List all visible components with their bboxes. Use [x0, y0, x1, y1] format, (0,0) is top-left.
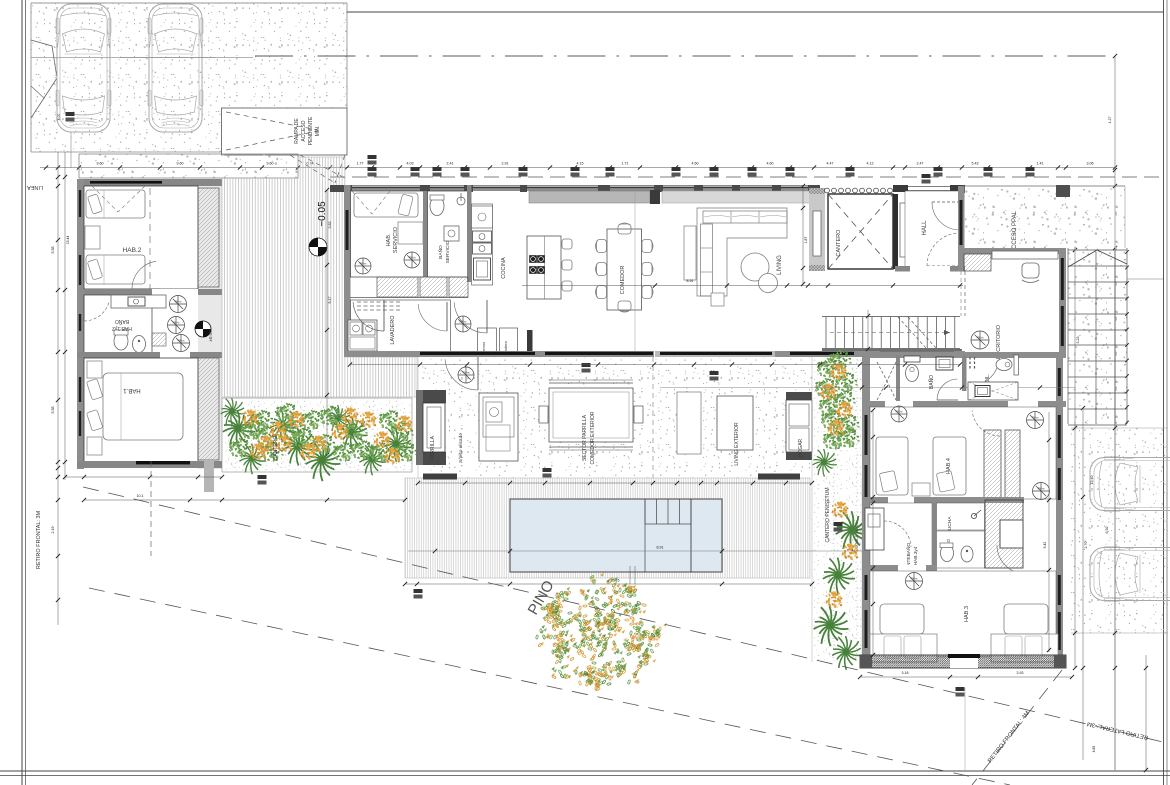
svg-text:RAMPA DE: RAMPA DE: [294, 118, 300, 144]
svg-text:2.47: 2.47: [917, 162, 924, 166]
svg-text:DOBLE MURO: DOBLE MURO: [854, 522, 859, 549]
svg-text:RETIRO FRONTAL: 4M: RETIRO FRONTAL: 4M: [987, 710, 1031, 764]
svg-text:HALL: HALL: [922, 220, 928, 236]
svg-text:2.41: 2.41: [447, 162, 454, 166]
svg-text:PHm: PHm: [178, 339, 185, 343]
svg-text:ACCESO PPAL: ACCESO PPAL: [1012, 210, 1018, 253]
svg-text:PENDIENTE: PENDIENTE: [308, 116, 314, 145]
svg-text:3.06: 3.06: [1087, 162, 1094, 166]
svg-text:COMEDOR: COMEDOR: [620, 266, 626, 295]
svg-text:MIN.: MIN.: [315, 126, 321, 137]
svg-text:RETIRO FRONTAL: 3M: RETIRO FRONTAL: 3M: [36, 510, 42, 569]
svg-text:6.92: 6.92: [1105, 527, 1109, 534]
svg-text:S/piso alisado: S/piso alisado: [458, 433, 464, 463]
svg-text:SERVICIO: SERVICIO: [445, 240, 451, 263]
svg-text:5.58: 5.58: [51, 407, 55, 414]
svg-text:ACCESO: ACCESO: [301, 120, 307, 141]
svg-text:COCINA: COCINA: [501, 257, 507, 279]
svg-text:CANTERO PENISETUM: CANTERO PENISETUM: [825, 487, 831, 542]
svg-text:2.70: 2.70: [1084, 542, 1088, 549]
svg-text:HAB.1: HAB.1: [123, 387, 141, 393]
svg-text:3.83: 3.83: [328, 222, 332, 229]
svg-text:1.71: 1.71: [622, 162, 629, 166]
svg-text:PHm: PHm: [175, 300, 182, 304]
svg-text:±0.00: ±0.00: [208, 330, 213, 342]
svg-text:CANTERO: CANTERO: [836, 229, 842, 257]
svg-text:15.44: 15.44: [66, 236, 70, 245]
svg-text:LIVING EXTERIOR: LIVING EXTERIOR: [734, 422, 740, 466]
svg-text:4.27: 4.27: [1108, 117, 1112, 124]
svg-text:5.58: 5.58: [51, 247, 55, 254]
svg-text:PHm: PHm: [173, 321, 180, 325]
svg-text:HAB.2: HAB.2: [123, 247, 142, 254]
svg-text:PHm: PHm: [911, 577, 918, 581]
svg-text:HAB.: HAB.: [386, 233, 392, 246]
svg-text:−0.05: −0.05: [317, 201, 328, 227]
svg-text:SERVICIO: SERVICIO: [393, 226, 399, 253]
svg-text:PARRILLA: PARRILLA: [430, 435, 436, 459]
svg-text:1.41: 1.41: [1037, 162, 1044, 166]
svg-text:3.18: 3.18: [902, 671, 909, 675]
svg-text:1.77: 1.77: [357, 162, 364, 166]
svg-text:RETIRO LATERAL:-3M: RETIRO LATERAL:-3M: [1087, 720, 1149, 740]
svg-text:10.1: 10.1: [137, 494, 144, 498]
svg-text:5.42: 5.42: [1043, 542, 1047, 549]
svg-text:COMEDOR EXTERIOR: COMEDOR EXTERIOR: [590, 411, 596, 464]
svg-text:2.19: 2.19: [51, 527, 55, 534]
svg-text:HOGAR: HOGAR: [798, 438, 804, 457]
svg-text:13.40: 13.40: [1090, 476, 1094, 485]
svg-text:LINEA: LINEA: [27, 184, 43, 190]
svg-text:2.91: 2.91: [502, 162, 509, 166]
svg-text:4.85: 4.85: [1092, 746, 1096, 753]
svg-text:8.91: 8.91: [657, 546, 664, 550]
svg-text:HAB.1y2: HAB.1y2: [112, 325, 132, 331]
svg-text:SECTOR PARRILLA: SECTOR PARRILLA: [582, 414, 588, 461]
svg-text:PHm: PHm: [977, 336, 984, 340]
svg-text:PHm: PHm: [1032, 416, 1039, 420]
svg-text:PHm: PHm: [463, 371, 470, 375]
svg-text:4.03: 4.03: [407, 162, 414, 166]
svg-text:BAÑO: BAÑO: [928, 375, 935, 389]
svg-text:4.60: 4.60: [767, 162, 774, 166]
svg-text:PHm: PHm: [360, 262, 367, 266]
svg-text:BAÑO: BAÑO: [115, 318, 129, 325]
svg-text:PHm: PHm: [896, 410, 903, 414]
svg-text:HAB.4: HAB.4: [946, 458, 952, 474]
svg-text:LAVADERO: LAVADERO: [390, 315, 396, 345]
svg-text:HAB.3y4: HAB.3y4: [913, 546, 919, 565]
svg-text:4.47: 4.47: [827, 162, 834, 166]
svg-text:5.43: 5.43: [972, 162, 979, 166]
svg-text:4.00: 4.00: [57, 114, 61, 121]
svg-text:1.87: 1.87: [804, 237, 808, 244]
svg-text:CANTERO: CANTERO: [273, 436, 279, 461]
svg-text:BAÑO: BAÑO: [437, 245, 444, 259]
svg-text:5.17: 5.17: [328, 297, 332, 304]
svg-text:8.91: 8.91: [687, 279, 694, 283]
svg-text:3.93: 3.93: [1017, 671, 1024, 675]
svg-text:PHm: PHm: [409, 256, 416, 260]
svg-text:LIVING: LIVING: [777, 255, 783, 275]
svg-text:4.60: 4.60: [692, 162, 699, 166]
svg-text:HAB.3: HAB.3: [964, 606, 970, 622]
svg-text:4.12: 4.12: [867, 162, 874, 166]
svg-text:PHm: PHm: [1038, 487, 1045, 491]
svg-text:4.15: 4.15: [577, 162, 584, 166]
